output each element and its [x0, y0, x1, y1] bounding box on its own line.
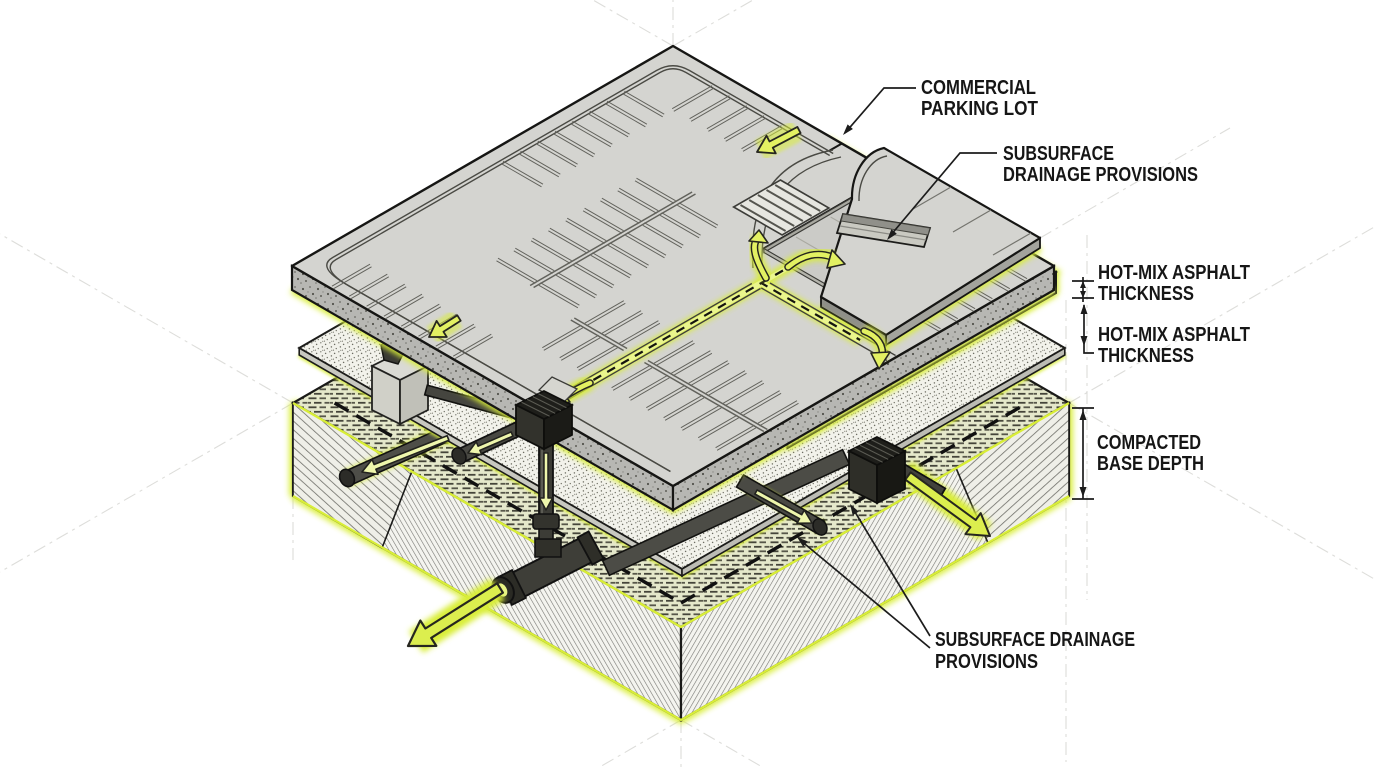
svg-text:COMMERCIAL: COMMERCIAL: [921, 76, 1036, 99]
svg-text:THICKNESS: THICKNESS: [1098, 344, 1194, 367]
svg-text:HOT-MIX ASPHALT: HOT-MIX ASPHALT: [1098, 323, 1250, 346]
svg-text:PROVISIONS: PROVISIONS: [935, 650, 1038, 673]
svg-text:HOT-MIX ASPHALT: HOT-MIX ASPHALT: [1098, 261, 1250, 284]
svg-text:SUBSURFACE: SUBSURFACE: [1003, 142, 1114, 165]
svg-text:COMPACTED: COMPACTED: [1097, 431, 1201, 454]
svg-text:BASE DEPTH: BASE DEPTH: [1097, 452, 1204, 475]
svg-text:SUBSURFACE DRAINAGE: SUBSURFACE DRAINAGE: [935, 628, 1135, 651]
svg-text:THICKNESS: THICKNESS: [1098, 282, 1194, 305]
svg-text:DRAINAGE PROVISIONS: DRAINAGE PROVISIONS: [1003, 163, 1198, 186]
svg-text:PARKING LOT: PARKING LOT: [921, 97, 1038, 120]
